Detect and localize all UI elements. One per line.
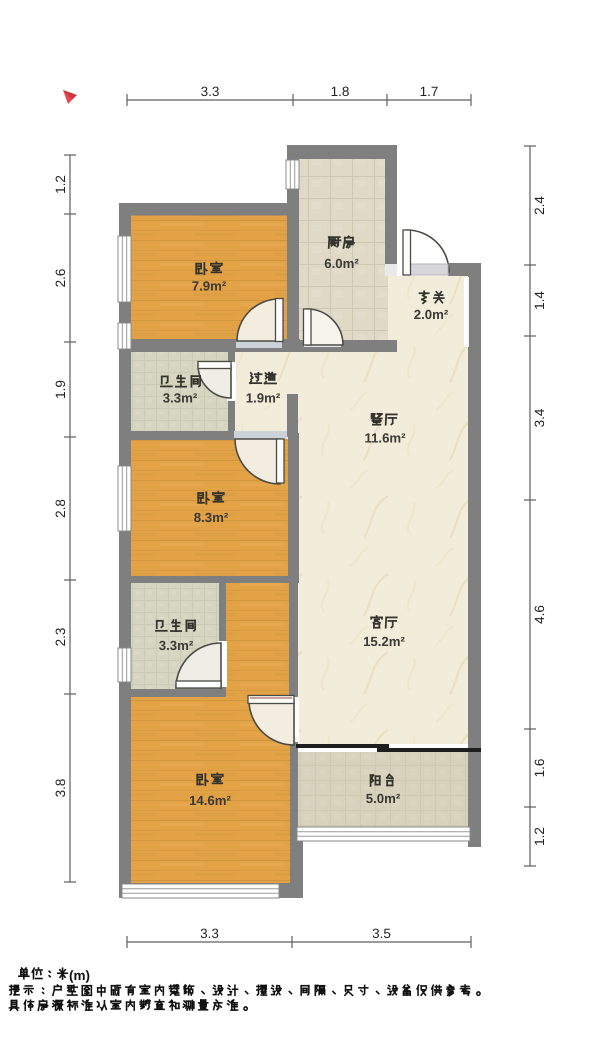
svg-text:2.8: 2.8 [53, 499, 68, 518]
svg-text:1.2: 1.2 [53, 175, 68, 194]
svg-text:1.6: 1.6 [532, 759, 547, 778]
svg-text:2.4: 2.4 [532, 196, 547, 215]
svg-text:3.4: 3.4 [532, 408, 547, 427]
svg-text:2.6: 2.6 [53, 269, 68, 288]
svg-text:3.3m²: 3.3m² [159, 638, 194, 653]
svg-text:1.7: 1.7 [420, 84, 439, 99]
svg-text:4.6: 4.6 [532, 605, 547, 624]
svg-text:(m): (m) [69, 968, 90, 983]
svg-text:1.9: 1.9 [53, 380, 68, 399]
svg-text:2.3: 2.3 [53, 628, 68, 647]
svg-text:5.0m²: 5.0m² [366, 791, 401, 806]
svg-text:8.3m²: 8.3m² [194, 510, 229, 525]
svg-text:3.3: 3.3 [200, 926, 219, 941]
svg-text:1.9m²: 1.9m² [246, 391, 281, 406]
svg-text:1.8: 1.8 [331, 84, 350, 99]
svg-text:6.0m²: 6.0m² [324, 256, 359, 271]
svg-text:3.3: 3.3 [201, 84, 220, 99]
svg-text:3.8: 3.8 [53, 779, 68, 798]
svg-text:15.2m²: 15.2m² [363, 634, 405, 649]
svg-text:2.0m²: 2.0m² [414, 307, 449, 322]
svg-text:3.3m²: 3.3m² [163, 391, 198, 406]
svg-text:3.5: 3.5 [372, 926, 391, 941]
svg-text:1.2: 1.2 [532, 827, 547, 846]
svg-text:7.9m²: 7.9m² [192, 279, 227, 294]
svg-text:11.6m²: 11.6m² [364, 431, 406, 446]
svg-text:14.6m²: 14.6m² [189, 793, 231, 808]
svg-text:1.4: 1.4 [532, 291, 547, 310]
